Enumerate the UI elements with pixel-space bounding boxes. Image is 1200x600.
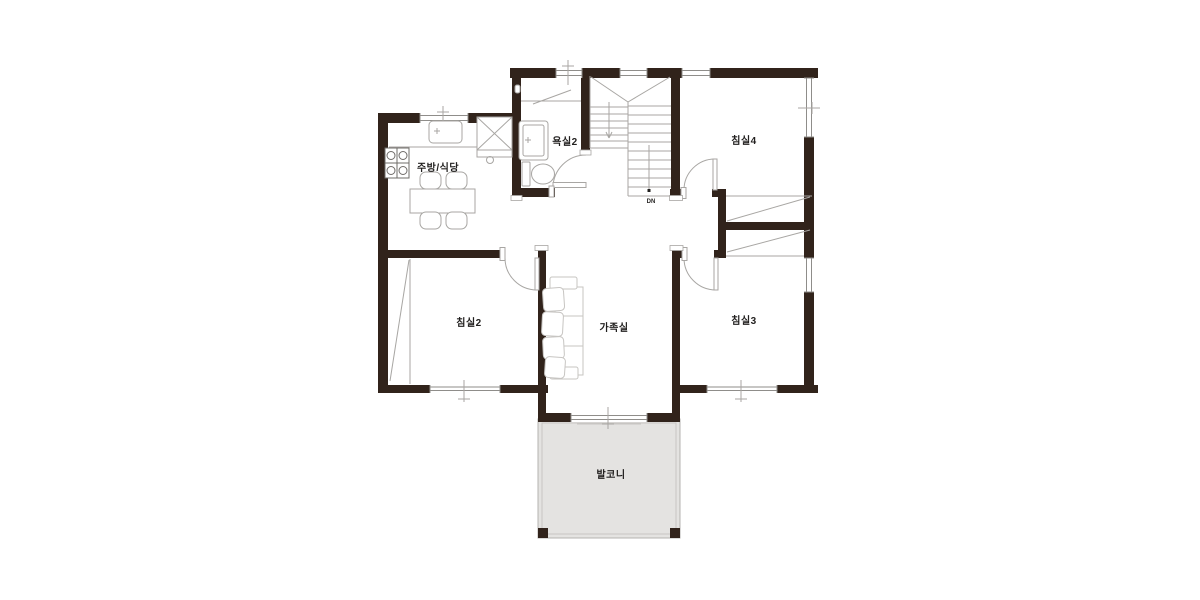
wall-closet-divider — [718, 222, 812, 230]
toilet — [522, 162, 555, 186]
chair — [446, 212, 467, 229]
dining-table — [410, 189, 475, 213]
room-label-bathroom-2: 욕실2 — [520, 133, 610, 148]
door-bedroom2 — [500, 248, 539, 291]
door-bedroom3 — [682, 248, 718, 291]
window — [430, 385, 500, 393]
door-swing-arc — [505, 258, 537, 290]
refrigerator — [477, 117, 512, 164]
stairs-dn-label: DN — [631, 199, 671, 205]
room-label-bedroom-2: 침실2 — [424, 314, 514, 329]
wall-family-right — [672, 250, 680, 422]
room-label-bedroom-4: 침실4 — [699, 132, 789, 147]
window — [556, 68, 582, 78]
chair — [420, 172, 441, 189]
sofa-cushion — [544, 356, 565, 378]
wall-bedroom2-top — [378, 250, 504, 258]
stair-down-arrow — [648, 189, 651, 192]
balcony-corner-post — [670, 528, 680, 538]
door-leaf — [713, 159, 717, 190]
balcony-corner-post — [538, 528, 548, 538]
window — [620, 68, 647, 78]
door-jamb — [500, 248, 505, 261]
sofa-cushion — [542, 336, 564, 359]
room-label-bedroom-3: 침실3 — [699, 312, 789, 327]
room-label-balcony: 발코니 — [566, 466, 656, 481]
door-leaf — [535, 258, 539, 290]
room-label-family-room: 가족실 — [569, 319, 659, 334]
sofa-armrest — [550, 277, 577, 289]
closet-bedroom2 — [390, 259, 410, 384]
room-label-kitchen-dining: 주방/식당 — [393, 159, 483, 174]
shower-head — [515, 85, 520, 93]
door-jamb — [549, 186, 554, 197]
window — [804, 258, 814, 292]
door-leaf — [553, 183, 586, 188]
door-swing-arc — [684, 159, 715, 190]
door-bedroom4 — [681, 159, 717, 199]
kitchen-sink — [429, 121, 462, 143]
door-swing-arc — [684, 258, 716, 290]
chair — [420, 212, 441, 229]
wall-closet-left — [718, 192, 726, 256]
floor-plan-drawing — [0, 0, 1200, 600]
shower-door — [533, 90, 571, 104]
door-leaf — [714, 258, 718, 290]
floor-plan-canvas: 주방/식당 욕실2 침실4 침실2 가족실 침실3 발코니 DN — [0, 0, 1200, 600]
closet-bedroom3 — [726, 230, 810, 256]
window — [707, 385, 777, 393]
closet-bedroom4 — [726, 196, 812, 221]
wall-stair-right — [671, 68, 680, 197]
sofa-cushion — [542, 287, 565, 311]
sofa-cushion — [541, 311, 563, 336]
chair — [446, 172, 467, 189]
window — [682, 68, 710, 78]
